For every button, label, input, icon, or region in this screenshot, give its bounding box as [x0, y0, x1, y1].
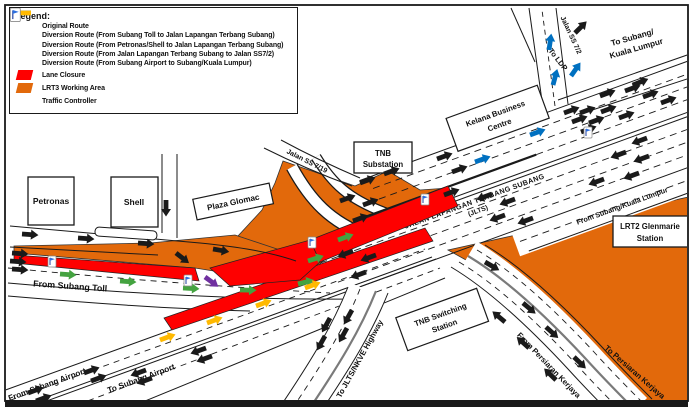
original-route-arrow [599, 102, 618, 117]
traffic-controller-flag [584, 127, 592, 138]
original-route-arrow [498, 194, 517, 209]
original-route-arrow [78, 233, 95, 244]
original-route-arrow [488, 210, 507, 225]
diversion-route-arrow [120, 276, 137, 287]
legend-item-diversion-jlts-ss72: Diversion Route (From Jalan Lapangan Ter… [15, 51, 292, 58]
building-tnb-switching-station: TNB Switching Station [396, 288, 489, 350]
building-tnb-substation: TNB Substation [354, 142, 412, 173]
diversion-route-arrow [548, 68, 562, 87]
legend-label: Diversion Route (From Subang Toll to Jal… [42, 32, 275, 39]
legend-label: Diversion Route (From Jalan Lapangan Ter… [42, 51, 274, 58]
lane-closure-swatch-icon [15, 70, 37, 80]
legend-label: Traffic Controller [42, 98, 97, 105]
original-route-arrow [659, 93, 678, 108]
road-label-ss72: Jalan SS 7/2 [559, 15, 583, 55]
legend-item-traffic-controller: Traffic Controller [15, 98, 292, 105]
traffic-controller-flag [308, 237, 316, 248]
legend-item-working-area: LRT3 Working Area [15, 83, 292, 93]
building-shell: Shell [111, 177, 158, 227]
traffic-controller-flag [48, 256, 56, 267]
original-route-arrow [587, 174, 606, 189]
building-lrt2-label1: LRT2 Glenmarie [620, 222, 680, 231]
building-lrt2-glenmarie: LRT2 Glenmarie Station [613, 216, 688, 247]
legend-item-diversion-petronas-shell: Diversion Route (From Petronas/Shell to … [15, 42, 292, 49]
legend-label: Lane Closure [42, 72, 85, 79]
original-route-arrow [632, 151, 651, 166]
legend-panel: Legend: Original Route Diversion Route (… [9, 7, 298, 114]
diversion-route-arrow [473, 152, 492, 167]
legend-label: Diversion Route (From Subang Airport to … [42, 60, 252, 67]
legend-title: Legend: [15, 11, 292, 21]
building-petronas-label: Petronas [33, 196, 70, 206]
original-route-arrow [450, 162, 469, 177]
legend-label: LRT3 Working Area [42, 85, 105, 92]
map-border-bottom [5, 400, 688, 407]
building-kelana-business-centre: Kelana Business Centre [446, 85, 549, 151]
original-route-arrow [609, 147, 628, 162]
legend-item-original-route: Original Route [15, 23, 292, 30]
building-petronas: Petronas [28, 177, 74, 225]
legend-item-diversion-airport: Diversion Route (From Subang Airport to … [15, 60, 292, 67]
original-route-arrow [562, 103, 581, 118]
original-route-arrow [22, 229, 39, 240]
building-tnb-substation-label2: Substation [363, 160, 404, 169]
building-tnb-substation-label1: TNB [375, 149, 391, 158]
legend-item-diversion-subang-toll: Diversion Route (From Subang Toll to Jal… [15, 32, 292, 39]
diversion-route-arrow [60, 269, 77, 280]
original-route-arrow [435, 149, 454, 164]
legend-item-lane-closure: Lane Closure [15, 70, 292, 80]
traffic-controller-flag [184, 275, 192, 286]
legend-label: Diversion Route (From Petronas/Shell to … [42, 42, 283, 49]
diversion-route-arrow [528, 125, 547, 140]
building-shell-label: Shell [124, 197, 144, 207]
original-route-arrow [349, 267, 368, 282]
working-area-swatch-icon [15, 83, 37, 93]
traffic-controller-flag [421, 194, 429, 205]
traffic-diversion-map: JALAN LAPANGAN TERBANG SUBANG (JLTS) Fro… [0, 0, 693, 419]
original-route-arrow [622, 168, 641, 183]
original-route-arrow [89, 371, 108, 386]
diversion-route-arrow [567, 60, 585, 79]
original-route-arrow [570, 112, 589, 127]
legend-label: Original Route [42, 23, 89, 30]
original-route-arrow [489, 308, 508, 326]
building-lrt2-label2: Station [637, 234, 664, 243]
original-route-arrow [617, 108, 636, 123]
road-label-from-subang-toll: From Subang Toll [33, 278, 108, 293]
original-route-arrow [630, 133, 649, 148]
